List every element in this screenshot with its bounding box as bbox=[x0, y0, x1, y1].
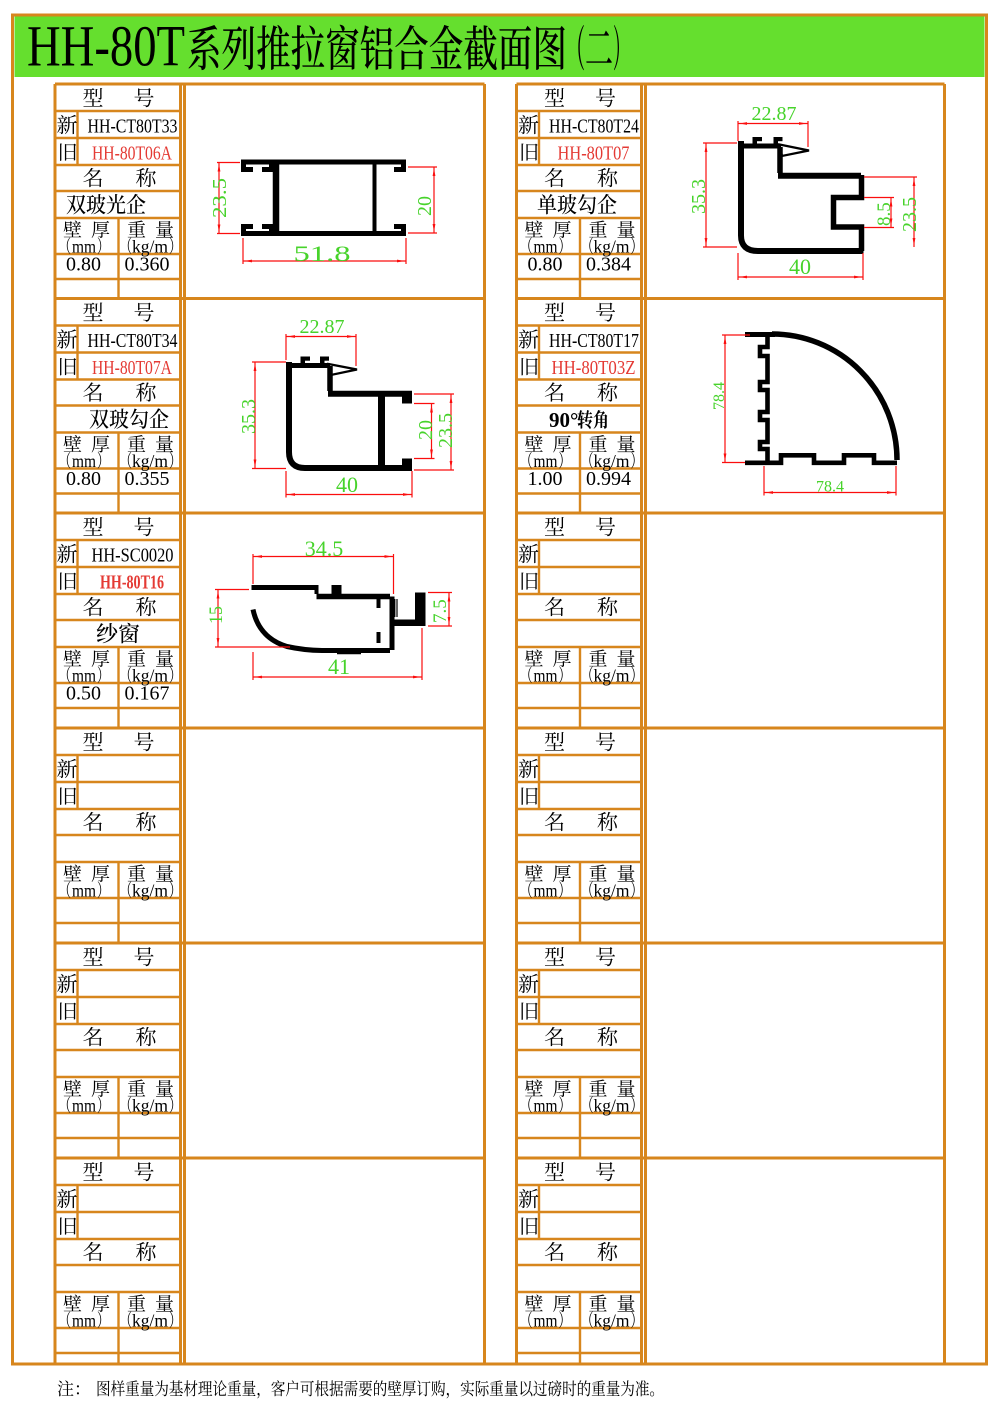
svg-text:mm: mm bbox=[534, 881, 558, 901]
svg-text:0.360: 0.360 bbox=[125, 254, 170, 276]
svg-text:kg/m: kg/m bbox=[594, 881, 630, 901]
svg-text:HH-80T06A: HH-80T06A bbox=[92, 143, 172, 165]
svg-text:mm: mm bbox=[72, 881, 96, 901]
svg-text:51.8: 51.8 bbox=[294, 241, 351, 266]
svg-text:40: 40 bbox=[789, 254, 811, 279]
svg-text:23.5: 23.5 bbox=[209, 178, 231, 218]
svg-text:78.4: 78.4 bbox=[816, 479, 844, 496]
svg-text:0.80: 0.80 bbox=[66, 254, 101, 276]
svg-text:78.4: 78.4 bbox=[711, 382, 728, 410]
svg-text:kg/m: kg/m bbox=[132, 1311, 168, 1331]
svg-text:23.5: 23.5 bbox=[435, 413, 457, 448]
svg-text:mm: mm bbox=[72, 1096, 96, 1116]
svg-text:HH-CT80T33: HH-CT80T33 bbox=[88, 116, 178, 138]
svg-text:35.3: 35.3 bbox=[688, 179, 710, 214]
svg-text:mm: mm bbox=[534, 1096, 558, 1116]
svg-text:HH-80T07A: HH-80T07A bbox=[92, 357, 172, 379]
svg-text:8.5: 8.5 bbox=[874, 202, 895, 226]
svg-text:mm: mm bbox=[72, 1311, 96, 1331]
svg-text:mm: mm bbox=[534, 1311, 558, 1331]
svg-text:kg/m: kg/m bbox=[594, 1096, 630, 1116]
svg-text:kg/m: kg/m bbox=[132, 1096, 168, 1116]
svg-text:0.994: 0.994 bbox=[586, 468, 631, 490]
svg-text:34.5: 34.5 bbox=[305, 536, 344, 561]
svg-text:0.384: 0.384 bbox=[586, 254, 631, 276]
svg-text:23.5: 23.5 bbox=[899, 197, 921, 232]
svg-text:kg/m: kg/m bbox=[594, 1311, 630, 1331]
svg-text:HH-80T07: HH-80T07 bbox=[558, 143, 630, 165]
svg-text:22.87: 22.87 bbox=[300, 316, 345, 338]
svg-text:40: 40 bbox=[336, 472, 358, 497]
svg-text:HH-80T: HH-80T bbox=[27, 14, 185, 79]
svg-text:kg/m: kg/m bbox=[594, 666, 630, 686]
svg-text:20: 20 bbox=[415, 420, 437, 440]
svg-text:0.167: 0.167 bbox=[125, 683, 170, 705]
svg-text:41: 41 bbox=[328, 654, 350, 679]
svg-text:HH-CT80T17: HH-CT80T17 bbox=[549, 330, 639, 352]
svg-text:90°: 90° bbox=[549, 408, 578, 432]
svg-text:kg/m: kg/m bbox=[132, 881, 168, 901]
svg-text:HH-SC0020: HH-SC0020 bbox=[92, 545, 174, 567]
svg-text:20: 20 bbox=[414, 196, 436, 216]
svg-text:22.87: 22.87 bbox=[752, 103, 797, 125]
svg-text:HH-CT80T34: HH-CT80T34 bbox=[88, 330, 178, 352]
svg-text:0.50: 0.50 bbox=[66, 683, 101, 705]
svg-text:1.00: 1.00 bbox=[528, 468, 563, 490]
svg-text:15: 15 bbox=[206, 606, 227, 624]
svg-text:0.355: 0.355 bbox=[125, 468, 170, 490]
svg-text:35.3: 35.3 bbox=[238, 399, 260, 434]
svg-text:0.80: 0.80 bbox=[66, 468, 101, 490]
svg-text:HH-80T03Z: HH-80T03Z bbox=[552, 357, 636, 379]
svg-text:7.5: 7.5 bbox=[430, 599, 451, 623]
svg-text:0.80: 0.80 bbox=[528, 254, 563, 276]
svg-text:HH-CT80T24: HH-CT80T24 bbox=[549, 116, 639, 138]
svg-text:HH-80T16: HH-80T16 bbox=[100, 572, 164, 594]
svg-text:mm: mm bbox=[534, 666, 558, 686]
